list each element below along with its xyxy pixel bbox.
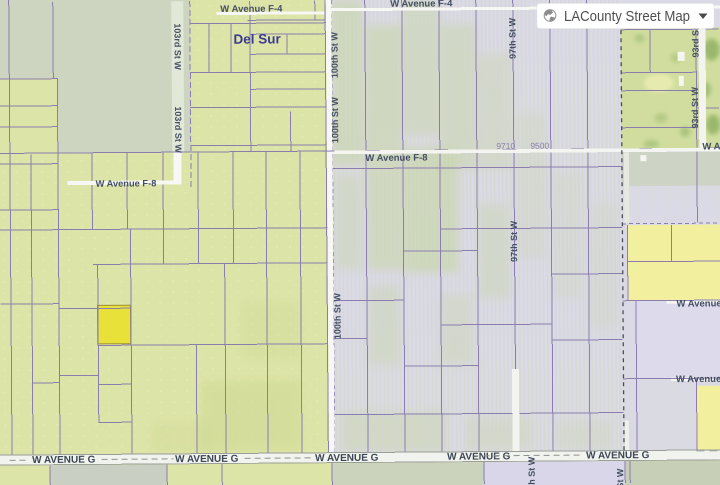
svg-text:93rd St W: 93rd St W	[690, 86, 700, 128]
svg-text:W AVENUE G: W AVENUE G	[447, 451, 511, 462]
svg-text:W Avenue F: W Avenue F	[676, 374, 720, 385]
svg-text:W Avenue F-4: W Avenue F-4	[220, 4, 283, 15]
svg-text:Del Sur: Del Sur	[233, 31, 281, 46]
svg-text:103rd St W: 103rd St W	[172, 23, 182, 70]
svg-text:W AVENUE G: W AVENUE G	[32, 455, 96, 466]
svg-text:96th St W: 96th St W	[527, 456, 537, 485]
svg-text:100th St W: 100th St W	[332, 293, 342, 340]
svg-text:LACounty Street Map: LACounty Street Map	[564, 8, 690, 25]
svg-text:W AVENUE G: W AVENUE G	[175, 454, 239, 465]
svg-text:W Aven: W Aven	[702, 141, 720, 152]
svg-text:W AVENUE G: W AVENUE G	[315, 453, 379, 464]
svg-text:W AVENUE G: W AVENUE G	[586, 450, 650, 461]
svg-text:93rd S: 93rd S	[690, 30, 700, 58]
svg-text:91st St W: 91st St W	[615, 468, 625, 485]
svg-text:100th St W: 100th St W	[330, 97, 340, 144]
svg-text:97th St W: 97th St W	[507, 17, 517, 59]
svg-text:100th St W: 100th St W	[329, 32, 339, 79]
svg-text:W Avenue F-8: W Avenue F-8	[96, 178, 157, 188]
svg-text:W Avenue F: W Avenue F	[676, 298, 720, 309]
svg-text:W Avenue F-4: W Avenue F-4	[390, 0, 453, 10]
svg-text:9500: 9500	[530, 141, 549, 151]
svg-text:103rd St W: 103rd St W	[173, 106, 183, 153]
svg-text:97th St W: 97th St W	[509, 220, 519, 262]
svg-text:9710: 9710	[496, 141, 515, 151]
svg-text:W Avenue F-8: W Avenue F-8	[365, 153, 427, 164]
